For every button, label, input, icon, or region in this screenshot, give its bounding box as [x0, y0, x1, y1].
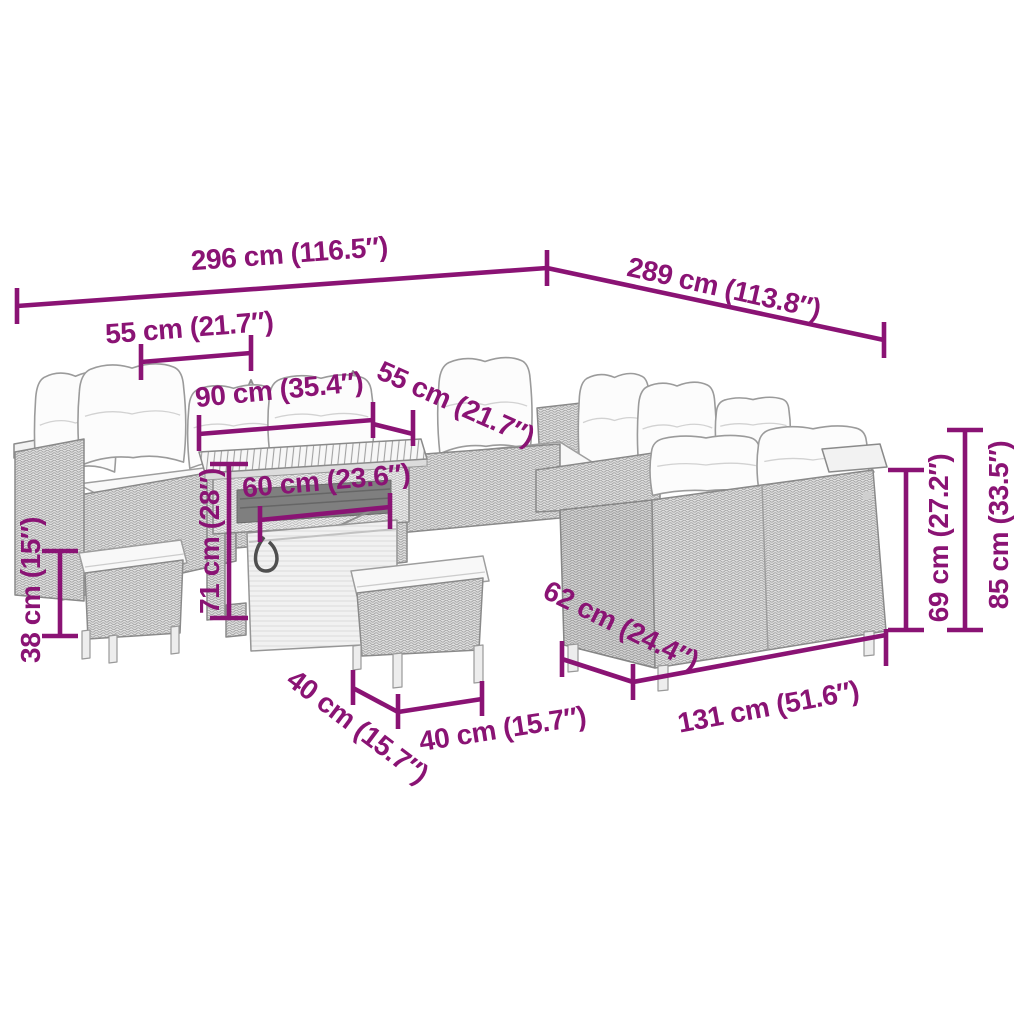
footstool-body: [85, 560, 183, 639]
dimension-total-width-right: 289 cm (113.8″): [547, 251, 884, 358]
dimension-stool-depth: 40 cm (15.7″): [281, 663, 434, 789]
dimension-label: 296 cm (116.5″): [190, 231, 389, 276]
footstool-leg: [82, 630, 90, 659]
dimension-line: [141, 353, 251, 362]
footstool-leg: [109, 635, 117, 663]
dimension-total-height: 85 cm (33.5″): [947, 430, 1014, 630]
dimension-label: 40 cm (15.7″): [281, 663, 434, 789]
footstool-leg: [353, 645, 361, 670]
sofa-leg: [864, 631, 874, 656]
footstool-middle: [351, 556, 489, 688]
back-cushion: [78, 364, 186, 466]
footstool-leg: [171, 626, 179, 654]
dimension-line: [17, 268, 547, 306]
dimension-label: 69 cm (27.2″): [923, 454, 954, 623]
dimension-label: 289 cm (113.8″): [624, 251, 823, 324]
dimension-label: 85 cm (33.5″): [983, 441, 1014, 610]
brand-tag: [863, 491, 872, 500]
footstool-leg: [474, 645, 483, 683]
dimension-line: [398, 699, 482, 712]
footstool-leg: [393, 653, 402, 688]
dimension-line: [373, 424, 413, 434]
dimension-label: 38 cm (15″): [15, 517, 46, 663]
dimension-stool-width: 40 cm (15.7″): [398, 681, 588, 757]
back-cushion: [650, 435, 762, 495]
dimension-label: 40 cm (15.7″): [417, 700, 588, 757]
dimension-total-width-left: 296 cm (116.5″): [17, 231, 547, 324]
right-armrest-pad: [822, 444, 887, 472]
dimension-label: 71 cm (28″): [194, 468, 225, 614]
diagram-canvas: 296 cm (116.5″) 289 cm (113.8″) 55 cm (2…: [0, 0, 1024, 1024]
footstool-left: [79, 540, 187, 663]
sofa-leg: [568, 644, 578, 672]
dimension-seat-back-height: 69 cm (27.2″): [888, 454, 954, 630]
dimension-label: 131 cm (51.6″): [675, 675, 861, 739]
dimension-diagram: 296 cm (116.5″) 289 cm (113.8″) 55 cm (2…: [0, 0, 1024, 1024]
right-sofa-front-panel: [652, 470, 886, 668]
